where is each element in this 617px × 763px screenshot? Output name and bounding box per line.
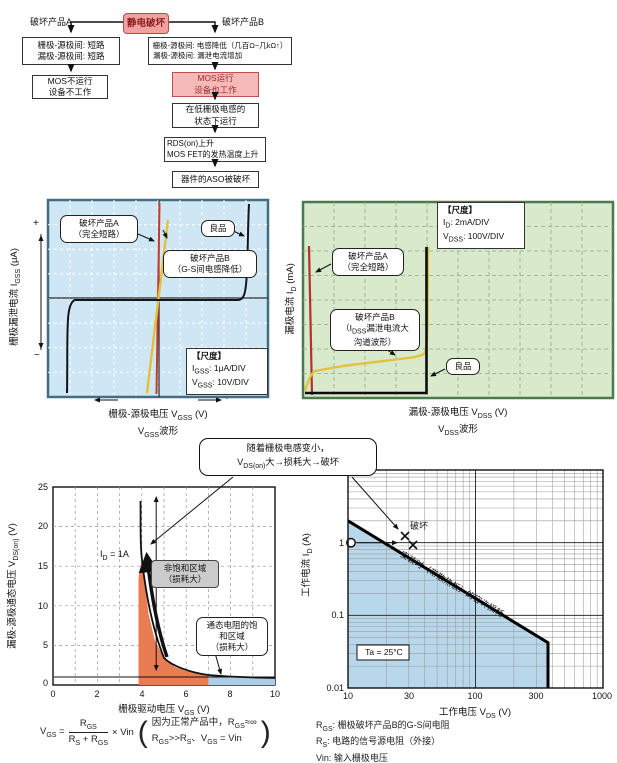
vgs-formula: VGS = RGS RS + RGS × Vin ( 因为正常产品中，RGS≈∞… bbox=[40, 716, 271, 748]
symbol-legend: RGS: 栅极破坏产品B的G-S间电阻 RS: 电路的信号源电阻（外接） Vin… bbox=[316, 719, 450, 763]
vdson-ytick-20: 20 bbox=[30, 521, 48, 531]
vdson-id-condition-label: ID = 1A bbox=[100, 549, 129, 562]
legend-rs: RS: 电路的信号源电阻（外接） bbox=[316, 735, 450, 751]
gss-x-axis-label: 栅极-源极电压 VGSS (V) bbox=[48, 406, 268, 422]
vdss-scale-line1: ID: 2mA/DIV bbox=[443, 217, 519, 231]
vdss-waveform-label: VDSS波形 bbox=[303, 421, 613, 437]
vdss-bubble-a-line1: 破坏产品A bbox=[336, 251, 400, 262]
formula-note2: RGS>>RS、VGS = Vin bbox=[152, 732, 257, 748]
gss-bubble-a-line2: （完全短路） bbox=[64, 229, 134, 240]
aso-xtick-10: 10 bbox=[341, 691, 355, 701]
legend-vin: Vin: 输入栅极电压 bbox=[316, 752, 450, 763]
gss-bubble-b-line1: 破坏产品B bbox=[167, 253, 253, 264]
gss-scale-line1: IGSS: 1μA/DIV bbox=[192, 363, 262, 377]
gss-bubble-product-b: 破坏产品B （G-S间电感降低） bbox=[163, 250, 257, 278]
vdss-scale-title: 【尺度】 bbox=[443, 205, 519, 217]
callout-line2: VDS(on)大→损耗大→破坏 bbox=[204, 456, 372, 472]
vdss-bubble-b-line2: （IDSS漏泄电流大 bbox=[334, 323, 416, 337]
vdss-bubble-product-b: 破坏产品B （IDSS漏泄电流大 沟道波形） bbox=[330, 309, 420, 351]
vdss-bubble-b-line1: 破坏产品B bbox=[334, 312, 416, 323]
gss-bubble-good: 良品 bbox=[201, 220, 235, 237]
vdss-bubble-a-line2: （完全短路） bbox=[336, 262, 400, 273]
vdson-x-axis-label: 栅极驱动电压 VGS (V) bbox=[53, 701, 275, 717]
vdson-region1-line1: 非饱和区域 bbox=[155, 563, 215, 574]
formula-mult: × Vin bbox=[112, 727, 134, 738]
gss-scale-box: 【尺度】 IGSS: 1μA/DIV VGSS: 10V/DIV bbox=[186, 348, 268, 395]
vdson-xtick-8: 8 bbox=[223, 689, 237, 699]
formula-notes: 因为正常产品中，RGS≈∞ RGS>>RS、VGS = Vin bbox=[152, 716, 257, 748]
vdss-x-axis-label: 漏极-源极电压 VDSS (V) bbox=[303, 404, 613, 420]
vdson-region2-line3: （损耗大） bbox=[200, 642, 264, 653]
formula-paren-close: ) bbox=[261, 719, 271, 746]
aso-xtick-300: 300 bbox=[526, 691, 546, 701]
vdss-bubble-good: 良品 bbox=[446, 358, 480, 375]
vdson-ytick-25: 25 bbox=[30, 482, 48, 492]
vdson-region2-bubble: 通态电阻的饱 和区域 （损耗大） bbox=[196, 617, 268, 656]
gss-bubble-a-line1: 破坏产品A bbox=[64, 218, 134, 229]
vdson-ytick-5: 5 bbox=[30, 640, 48, 650]
aso-y-axis-label: 工作电流 ID (A) bbox=[298, 533, 314, 597]
flowchart-connectors bbox=[0, 0, 617, 200]
formula-lhs: VGS = bbox=[40, 726, 65, 739]
legend-rgs: RGS: 栅极破坏产品B的G-S间电阻 bbox=[316, 719, 450, 735]
vdss-scale-line2: VDSS: 100V/DIV bbox=[443, 231, 519, 245]
esd-title-box: 静电破坏 bbox=[123, 13, 169, 34]
gss-y-plus: + bbox=[33, 218, 39, 229]
vdss-y-axis-label: 漏极电流 ID (mA) bbox=[282, 263, 298, 335]
formula-denominator: RS + RGS bbox=[69, 733, 108, 747]
callout-line1: 随着栅极电感变小， bbox=[204, 442, 372, 456]
vdson-region2-line2: 和区域 bbox=[200, 631, 264, 642]
gss-scale-title: 【尺度】 bbox=[192, 351, 262, 363]
vdson-ytick-15: 15 bbox=[30, 561, 48, 571]
vdson-xtick-4: 4 bbox=[135, 689, 149, 699]
callout-bubble: 随着栅极电感变小， VDS(on)大→损耗大→破坏 bbox=[199, 438, 377, 476]
aso-ta-label: Ta = 25°C bbox=[358, 647, 410, 657]
formula-note1: 因为正常产品中，RGS≈∞ bbox=[152, 716, 257, 732]
vdson-region2-line1: 通态电阻的饱 bbox=[200, 620, 264, 631]
formula-numerator: RGS bbox=[69, 718, 108, 733]
gss-bubble-b-line2: （G-S间电感降低） bbox=[167, 264, 253, 275]
vdson-xtick-0: 0 bbox=[46, 689, 60, 699]
aso-xtick-1000: 1000 bbox=[589, 691, 615, 701]
vdson-ytick-0: 0 bbox=[30, 678, 48, 688]
vdson-region1-line2: （损耗大） bbox=[155, 574, 215, 585]
vdss-bubble-b-line3: 沟道波形） bbox=[334, 337, 416, 348]
formula-fraction: RGS RS + RGS bbox=[69, 718, 108, 747]
gss-waveform-label: VGSS波形 bbox=[48, 423, 268, 439]
aso-damage-label: 破坏 bbox=[410, 519, 428, 532]
gss-bubble-product-a: 破坏产品A （完全短路） bbox=[60, 215, 138, 243]
gss-scale-line2: VGSS: 10V/DIV bbox=[192, 377, 262, 391]
gss-y-minus: − bbox=[34, 350, 40, 361]
aso-ytick-1: 1 bbox=[322, 538, 344, 548]
aso-xtick-100: 100 bbox=[465, 691, 485, 701]
aso-ytick-01: 0.1 bbox=[322, 610, 344, 620]
formula-paren-open: ( bbox=[138, 719, 148, 746]
aso-x-axis-label: 工作电压 VDS (V) bbox=[380, 704, 570, 720]
vdss-scale-box: 【尺度】 ID: 2mA/DIV VDSS: 100V/DIV bbox=[437, 202, 525, 249]
vdson-xtick-2: 2 bbox=[90, 689, 104, 699]
vdson-xtick-6: 6 bbox=[179, 689, 193, 699]
aso-xtick-30: 30 bbox=[402, 691, 416, 701]
vdson-y-axis-label: 漏极-源极通态电压 VDS(on) (V) bbox=[4, 523, 20, 649]
vdss-bubble-product-a: 破坏产品A （完全短路） bbox=[332, 248, 404, 276]
vdson-region1-box: 非饱和区域 （损耗大） bbox=[151, 560, 219, 588]
vdson-ytick-10: 10 bbox=[30, 601, 48, 611]
vdson-xtick-10: 10 bbox=[266, 689, 284, 699]
gss-y-axis-label: 栅极漏泄电流 IGSS (μA) bbox=[6, 248, 22, 346]
esd-damage-diagram: 静电破坏 破坏产品A 破坏产品B 栅极-源极间: 短路 漏极-源极间: 短路 栅… bbox=[0, 0, 617, 763]
